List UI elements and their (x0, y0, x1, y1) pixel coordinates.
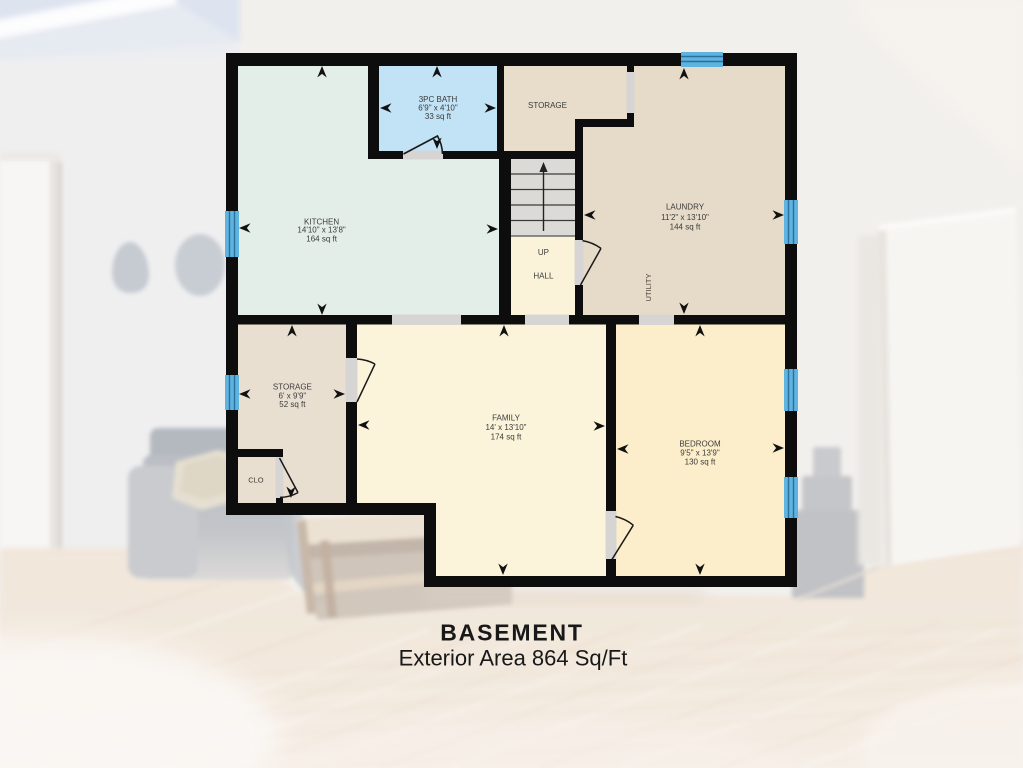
svg-text:174 sq ft: 174 sq ft (491, 433, 522, 442)
svg-text:11'2" x 13'10": 11'2" x 13'10" (661, 213, 709, 222)
svg-text:CLO: CLO (248, 475, 264, 484)
svg-text:BEDROOM: BEDROOM (679, 439, 721, 448)
svg-text:UP: UP (538, 248, 549, 257)
svg-text:FAMILY: FAMILY (492, 414, 521, 423)
svg-text:33 sq ft: 33 sq ft (425, 112, 452, 121)
svg-text:9'5" x 13'9": 9'5" x 13'9" (680, 448, 720, 457)
svg-text:BASEMENT: BASEMENT (440, 620, 583, 646)
svg-text:130 sq ft: 130 sq ft (685, 457, 716, 466)
svg-text:14' x 13'10": 14' x 13'10" (485, 423, 526, 432)
svg-text:LAUNDRY: LAUNDRY (666, 203, 705, 212)
svg-text:144 sq ft: 144 sq ft (670, 223, 701, 232)
svg-text:14'10" x 13'8": 14'10" x 13'8" (297, 226, 345, 235)
svg-text:STORAGE: STORAGE (528, 101, 567, 110)
svg-text:3PC BATH: 3PC BATH (419, 95, 458, 104)
svg-text:52 sq ft: 52 sq ft (279, 400, 306, 409)
svg-text:164 sq ft: 164 sq ft (306, 235, 337, 244)
svg-text:Exterior Area 864 Sq/Ft: Exterior Area 864 Sq/Ft (399, 645, 628, 670)
svg-text:HALL: HALL (533, 271, 554, 280)
svg-text:STORAGE: STORAGE (273, 383, 312, 392)
svg-text:UTILITY: UTILITY (644, 274, 653, 302)
